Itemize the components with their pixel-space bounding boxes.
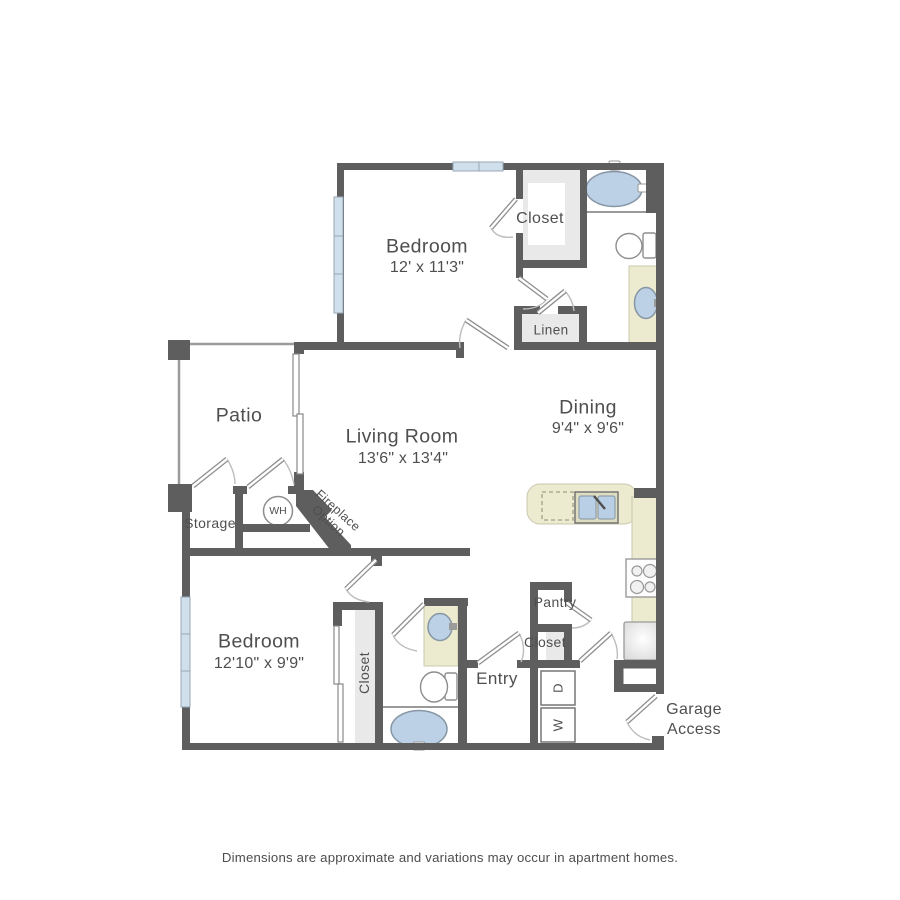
dining-label: Dining: [559, 397, 617, 420]
water-heater-label: WH: [269, 505, 287, 517]
closet-3-label: Closet: [524, 634, 566, 650]
door-laundry-hall: [580, 633, 617, 661]
garage-line-2: Access: [666, 720, 722, 740]
linen-label: Linen: [533, 323, 568, 338]
garage-access-label: Garage Access: [666, 700, 722, 740]
vanity-sink-2-icon: [424, 604, 458, 666]
entry-label: Entry: [476, 669, 518, 689]
door-bathroom-2: [393, 604, 424, 651]
disclaimer-text: Dimensions are approximate and variation…: [0, 850, 900, 865]
door-entry: [478, 633, 524, 663]
living-room-label: Living Room: [346, 426, 459, 449]
bedroom-2-dimensions: 12'10" x 9'9": [214, 655, 304, 673]
bedroom-2-label: Bedroom: [218, 631, 300, 654]
toilet-2-icon: [421, 672, 458, 702]
door-garage-access: [627, 696, 656, 740]
floor-plan-drawing: [0, 0, 900, 900]
garage-line-1: Garage: [666, 700, 722, 720]
storage-label: Storage: [184, 515, 236, 531]
door-closet-1: [491, 199, 516, 237]
door-patio-storage: [193, 459, 235, 486]
toilet-1-icon: [616, 233, 656, 259]
living-room-dimensions: 13'6" x 13'4": [358, 450, 448, 468]
door-hall-bath-1: [519, 278, 547, 309]
dryer-label: D: [551, 683, 566, 693]
door-bedroom-1: [460, 320, 508, 348]
pantry-label: Pantry: [534, 594, 577, 610]
closet-1-label: Closet: [516, 210, 564, 228]
floor-plan-page: Bedroom 12' x 11'3" Closet Linen Patio L…: [0, 0, 900, 900]
door-patio-wh: [248, 459, 294, 487]
kitchen-sink-icon: [575, 492, 618, 523]
bedroom-1-dimensions: 12' x 11'3": [390, 259, 464, 277]
closet-2-label: Closet: [356, 652, 372, 694]
sliding-glass-door: [293, 354, 303, 474]
washer-label: W: [551, 719, 566, 732]
closet-sliding-door: [334, 626, 343, 742]
stove-icon: [626, 559, 660, 597]
patio-label: Patio: [216, 405, 262, 428]
door-bedroom-2: [346, 560, 376, 602]
dining-dimensions: 9'4" x 9'6": [552, 420, 624, 438]
bedroom-1-label: Bedroom: [386, 236, 468, 259]
